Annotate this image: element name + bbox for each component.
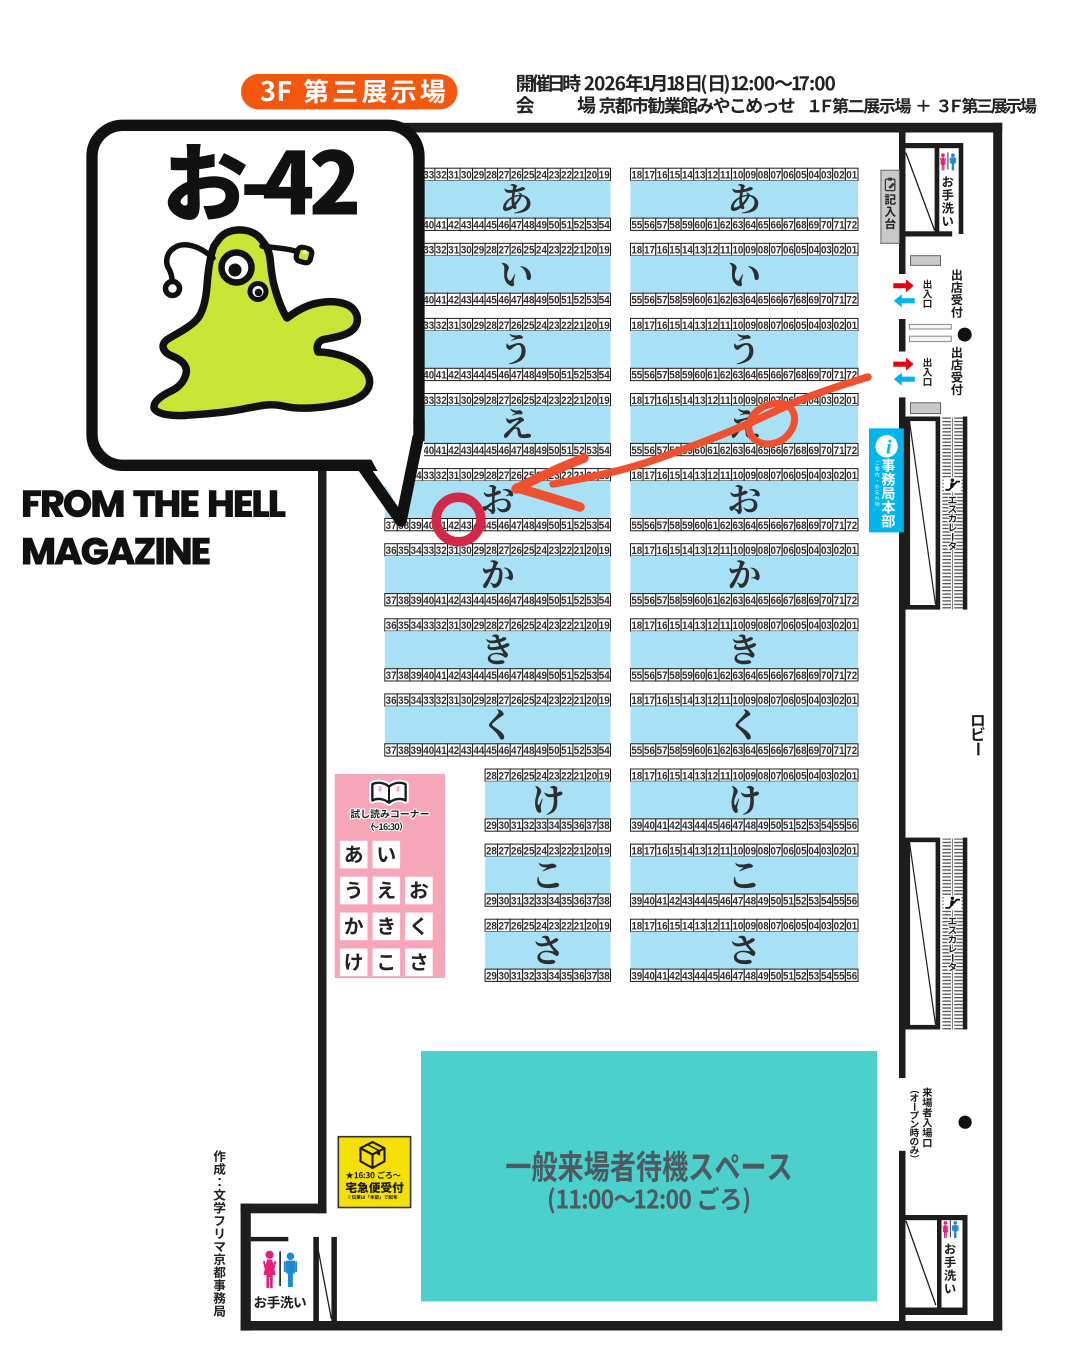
svg-text:04: 04	[808, 620, 820, 632]
svg-text:13: 13	[695, 545, 706, 557]
svg-text:58: 58	[669, 370, 680, 382]
svg-text:49: 49	[536, 370, 547, 382]
svg-text:27: 27	[498, 620, 509, 632]
svg-text:38: 38	[398, 670, 409, 682]
svg-text:08: 08	[758, 245, 769, 257]
svg-text:51: 51	[561, 745, 572, 757]
svg-text:26: 26	[511, 245, 522, 257]
svg-text:19: 19	[599, 170, 610, 182]
svg-text:08: 08	[758, 320, 769, 332]
svg-text:26: 26	[511, 921, 522, 933]
svg-text:66: 66	[770, 295, 781, 307]
svg-text:32: 32	[436, 620, 447, 632]
svg-text:04: 04	[808, 320, 820, 332]
svg-text:26: 26	[511, 545, 522, 557]
svg-text:59: 59	[682, 219, 693, 231]
svg-text:45: 45	[486, 745, 497, 757]
svg-text:28: 28	[486, 470, 497, 482]
svg-text:50: 50	[549, 445, 560, 457]
svg-text:03: 03	[821, 545, 832, 557]
svg-text:13: 13	[695, 845, 706, 857]
svg-text:28: 28	[486, 395, 497, 407]
svg-text:35: 35	[398, 545, 409, 557]
svg-text:19: 19	[599, 620, 610, 632]
svg-text:02: 02	[834, 921, 845, 933]
svg-text:20: 20	[586, 620, 597, 632]
svg-text:22: 22	[561, 170, 572, 182]
svg-text:14: 14	[682, 620, 694, 632]
svg-text:02: 02	[834, 545, 845, 557]
svg-text:55: 55	[631, 595, 642, 607]
svg-text:48: 48	[524, 670, 535, 682]
svg-text:48: 48	[745, 820, 756, 832]
svg-text:07: 07	[770, 845, 781, 857]
svg-text:70: 70	[821, 595, 832, 607]
svg-text:58: 58	[669, 295, 680, 307]
svg-text:52: 52	[574, 295, 585, 307]
svg-text:47: 47	[511, 745, 522, 757]
svg-text:06: 06	[783, 695, 794, 707]
svg-text:15: 15	[669, 245, 680, 257]
svg-text:50: 50	[549, 745, 560, 757]
svg-text:24: 24	[536, 770, 548, 782]
svg-text:61: 61	[707, 219, 718, 231]
svg-text:50: 50	[770, 895, 781, 907]
svg-text:45: 45	[707, 895, 718, 907]
svg-text:36: 36	[386, 695, 397, 707]
svg-text:49: 49	[536, 745, 547, 757]
svg-text:24: 24	[536, 921, 548, 933]
svg-text:52: 52	[796, 895, 807, 907]
svg-text:51: 51	[783, 820, 794, 832]
svg-text:26: 26	[511, 320, 522, 332]
svg-text:32: 32	[436, 395, 447, 407]
svg-text:05: 05	[796, 695, 807, 707]
svg-text:49: 49	[536, 295, 547, 307]
svg-text:25: 25	[524, 170, 535, 182]
svg-text:56: 56	[644, 370, 655, 382]
svg-text:68: 68	[796, 745, 807, 757]
svg-text:49: 49	[758, 820, 769, 832]
svg-text:22: 22	[561, 921, 572, 933]
svg-text:50: 50	[549, 595, 560, 607]
svg-text:64: 64	[745, 670, 757, 682]
svg-text:35: 35	[561, 820, 572, 832]
svg-text:40: 40	[423, 219, 434, 231]
svg-text:18: 18	[631, 170, 642, 182]
svg-text:27: 27	[498, 770, 509, 782]
svg-text:32: 32	[436, 170, 447, 182]
svg-text:02: 02	[834, 320, 845, 332]
svg-text:15: 15	[669, 695, 680, 707]
svg-text:53: 53	[808, 820, 819, 832]
svg-text:45: 45	[707, 820, 718, 832]
svg-text:47: 47	[511, 670, 522, 682]
svg-text:31: 31	[511, 820, 522, 832]
svg-text:56: 56	[644, 445, 655, 457]
svg-text:27: 27	[498, 695, 509, 707]
svg-text:70: 70	[821, 445, 832, 457]
svg-text:03: 03	[821, 921, 832, 933]
svg-text:54: 54	[599, 445, 611, 457]
svg-text:43: 43	[461, 219, 472, 231]
svg-text:55: 55	[834, 971, 845, 983]
svg-text:54: 54	[599, 219, 611, 231]
svg-text:67: 67	[783, 295, 794, 307]
svg-text:03: 03	[821, 620, 832, 632]
svg-text:12: 12	[707, 770, 718, 782]
svg-text:58: 58	[669, 520, 680, 532]
svg-text:67: 67	[783, 670, 794, 682]
svg-text:26: 26	[511, 770, 522, 782]
svg-text:41: 41	[436, 370, 447, 382]
svg-text:57: 57	[657, 670, 668, 682]
svg-text:22: 22	[561, 395, 572, 407]
svg-text:51: 51	[561, 370, 572, 382]
svg-text:50: 50	[770, 820, 781, 832]
svg-text:14: 14	[682, 395, 694, 407]
svg-text:31: 31	[448, 320, 459, 332]
svg-text:34: 34	[411, 545, 423, 557]
svg-text:10: 10	[732, 695, 743, 707]
svg-text:59: 59	[682, 595, 693, 607]
svg-text:09: 09	[745, 921, 756, 933]
svg-text:29: 29	[473, 470, 484, 482]
svg-text:42: 42	[448, 445, 459, 457]
svg-text:04: 04	[808, 770, 820, 782]
svg-text:72: 72	[846, 670, 857, 682]
svg-text:33: 33	[423, 545, 434, 557]
svg-text:43: 43	[461, 520, 472, 532]
svg-text:22: 22	[561, 320, 572, 332]
svg-text:27: 27	[498, 245, 509, 257]
svg-text:68: 68	[796, 595, 807, 607]
svg-text:52: 52	[574, 670, 585, 682]
svg-text:49: 49	[536, 670, 547, 682]
svg-text:53: 53	[808, 971, 819, 983]
svg-text:48: 48	[745, 895, 756, 907]
svg-text:11: 11	[720, 545, 731, 557]
svg-text:31: 31	[511, 971, 522, 983]
svg-text:16: 16	[657, 921, 668, 933]
svg-text:58: 58	[669, 595, 680, 607]
svg-text:06: 06	[783, 620, 794, 632]
svg-text:25: 25	[524, 245, 535, 257]
svg-text:06: 06	[783, 170, 794, 182]
svg-text:23: 23	[549, 921, 560, 933]
svg-text:37: 37	[586, 971, 597, 983]
svg-text:57: 57	[657, 520, 668, 532]
svg-text:57: 57	[657, 595, 668, 607]
svg-text:56: 56	[644, 745, 655, 757]
svg-text:33: 33	[423, 620, 434, 632]
svg-text:22: 22	[561, 620, 572, 632]
svg-text:69: 69	[808, 295, 819, 307]
svg-text:61: 61	[707, 745, 718, 757]
svg-text:49: 49	[536, 219, 547, 231]
svg-text:72: 72	[846, 595, 857, 607]
svg-text:47: 47	[511, 445, 522, 457]
svg-text:51: 51	[561, 445, 572, 457]
svg-text:62: 62	[720, 445, 731, 457]
svg-text:37: 37	[386, 595, 397, 607]
svg-text:04: 04	[808, 845, 820, 857]
svg-text:55: 55	[631, 670, 642, 682]
svg-text:30: 30	[461, 395, 472, 407]
svg-text:15: 15	[669, 770, 680, 782]
svg-text:13: 13	[695, 921, 706, 933]
svg-text:65: 65	[758, 295, 769, 307]
svg-text:57: 57	[657, 295, 668, 307]
svg-text:50: 50	[549, 295, 560, 307]
svg-text:63: 63	[732, 219, 743, 231]
svg-text:46: 46	[498, 295, 509, 307]
svg-text:10: 10	[732, 320, 743, 332]
svg-text:65: 65	[758, 670, 769, 682]
svg-text:22: 22	[561, 695, 572, 707]
svg-text:47: 47	[511, 295, 522, 307]
svg-text:54: 54	[599, 370, 611, 382]
svg-text:68: 68	[796, 370, 807, 382]
svg-text:21: 21	[574, 320, 585, 332]
svg-text:60: 60	[695, 370, 706, 382]
svg-text:28: 28	[486, 921, 497, 933]
svg-text:05: 05	[796, 845, 807, 857]
svg-text:09: 09	[745, 695, 756, 707]
svg-text:04: 04	[808, 245, 820, 257]
svg-text:69: 69	[808, 370, 819, 382]
svg-text:52: 52	[574, 370, 585, 382]
svg-text:30: 30	[461, 695, 472, 707]
svg-text:23: 23	[549, 320, 560, 332]
svg-text:25: 25	[524, 695, 535, 707]
svg-text:16: 16	[657, 695, 668, 707]
svg-text:56: 56	[644, 670, 655, 682]
svg-text:04: 04	[808, 170, 820, 182]
svg-text:09: 09	[745, 320, 756, 332]
svg-text:30: 30	[461, 620, 472, 632]
svg-text:71: 71	[834, 595, 845, 607]
svg-text:48: 48	[524, 445, 535, 457]
svg-text:18: 18	[631, 620, 642, 632]
svg-text:63: 63	[732, 745, 743, 757]
svg-text:59: 59	[682, 370, 693, 382]
svg-text:16: 16	[657, 620, 668, 632]
svg-text:54: 54	[821, 820, 833, 832]
svg-text:18: 18	[631, 921, 642, 933]
svg-text:34: 34	[549, 895, 561, 907]
svg-text:58: 58	[669, 219, 680, 231]
svg-text:13: 13	[695, 170, 706, 182]
svg-text:63: 63	[732, 295, 743, 307]
svg-text:42: 42	[448, 745, 459, 757]
svg-text:50: 50	[549, 370, 560, 382]
svg-text:26: 26	[511, 845, 522, 857]
svg-text:19: 19	[599, 545, 610, 557]
svg-text:54: 54	[599, 520, 611, 532]
svg-text:29: 29	[473, 545, 484, 557]
svg-text:57: 57	[657, 219, 668, 231]
svg-text:21: 21	[574, 245, 585, 257]
svg-text:51: 51	[783, 971, 794, 983]
svg-text:51: 51	[561, 295, 572, 307]
svg-text:62: 62	[720, 670, 731, 682]
svg-text:16: 16	[657, 395, 668, 407]
svg-text:62: 62	[720, 520, 731, 532]
svg-text:01: 01	[846, 470, 857, 482]
svg-text:33: 33	[536, 971, 547, 983]
svg-text:17: 17	[644, 245, 655, 257]
svg-text:43: 43	[682, 820, 693, 832]
svg-text:08: 08	[758, 170, 769, 182]
svg-text:53: 53	[586, 745, 597, 757]
svg-text:50: 50	[549, 520, 560, 532]
svg-text:12: 12	[707, 695, 718, 707]
svg-text:01: 01	[846, 770, 857, 782]
svg-text:70: 70	[821, 670, 832, 682]
svg-text:47: 47	[732, 895, 743, 907]
svg-text:36: 36	[574, 971, 585, 983]
svg-text:55: 55	[834, 820, 845, 832]
svg-text:57: 57	[657, 745, 668, 757]
svg-text:46: 46	[498, 670, 509, 682]
svg-text:40: 40	[423, 745, 434, 757]
svg-text:05: 05	[796, 620, 807, 632]
svg-text:06: 06	[783, 320, 794, 332]
svg-text:06: 06	[783, 770, 794, 782]
svg-text:24: 24	[536, 245, 548, 257]
svg-text:17: 17	[644, 695, 655, 707]
svg-text:35: 35	[398, 620, 409, 632]
svg-text:44: 44	[695, 895, 707, 907]
svg-text:08: 08	[758, 470, 769, 482]
svg-text:41: 41	[657, 820, 668, 832]
svg-text:69: 69	[808, 445, 819, 457]
svg-text:32: 32	[524, 820, 535, 832]
svg-text:47: 47	[732, 820, 743, 832]
svg-text:29: 29	[486, 895, 497, 907]
svg-text:10: 10	[732, 770, 743, 782]
svg-text:11: 11	[720, 170, 731, 182]
svg-text:64: 64	[745, 370, 757, 382]
svg-text:29: 29	[473, 320, 484, 332]
svg-text:55: 55	[631, 370, 642, 382]
svg-text:12: 12	[707, 245, 718, 257]
svg-text:40: 40	[423, 370, 434, 382]
svg-text:67: 67	[783, 520, 794, 532]
svg-text:18: 18	[631, 395, 642, 407]
svg-text:13: 13	[695, 770, 706, 782]
svg-text:66: 66	[770, 370, 781, 382]
svg-text:33: 33	[423, 320, 434, 332]
svg-text:17: 17	[644, 620, 655, 632]
svg-text:67: 67	[783, 595, 794, 607]
svg-text:66: 66	[770, 219, 781, 231]
svg-text:11: 11	[720, 395, 731, 407]
svg-text:60: 60	[695, 670, 706, 682]
svg-text:26: 26	[511, 395, 522, 407]
svg-text:08: 08	[758, 620, 769, 632]
svg-text:06: 06	[783, 245, 794, 257]
svg-text:22: 22	[561, 245, 572, 257]
svg-text:09: 09	[745, 170, 756, 182]
svg-text:38: 38	[398, 745, 409, 757]
svg-text:03: 03	[821, 695, 832, 707]
svg-text:24: 24	[536, 695, 548, 707]
svg-text:19: 19	[599, 845, 610, 857]
svg-text:20: 20	[586, 395, 597, 407]
svg-text:71: 71	[834, 520, 845, 532]
svg-text:44: 44	[473, 595, 485, 607]
svg-text:46: 46	[498, 595, 509, 607]
svg-text:25: 25	[524, 320, 535, 332]
svg-text:26: 26	[511, 620, 522, 632]
svg-text:63: 63	[732, 370, 743, 382]
svg-text:27: 27	[498, 320, 509, 332]
svg-text:35: 35	[561, 971, 572, 983]
svg-text:64: 64	[745, 595, 757, 607]
svg-text:40: 40	[423, 295, 434, 307]
svg-text:44: 44	[695, 971, 707, 983]
svg-text:12: 12	[707, 320, 718, 332]
svg-text:11: 11	[720, 921, 731, 933]
svg-text:17: 17	[644, 320, 655, 332]
svg-text:21: 21	[574, 845, 585, 857]
svg-text:16: 16	[657, 320, 668, 332]
svg-text:39: 39	[411, 520, 422, 532]
svg-text:13: 13	[695, 695, 706, 707]
svg-text:23: 23	[549, 245, 560, 257]
svg-text:09: 09	[745, 245, 756, 257]
svg-text:39: 39	[411, 670, 422, 682]
svg-text:41: 41	[436, 219, 447, 231]
svg-text:51: 51	[561, 670, 572, 682]
svg-text:65: 65	[758, 370, 769, 382]
svg-text:31: 31	[448, 620, 459, 632]
svg-text:16: 16	[657, 770, 668, 782]
svg-text:66: 66	[770, 670, 781, 682]
svg-text:72: 72	[846, 219, 857, 231]
svg-text:48: 48	[524, 520, 535, 532]
svg-text:38: 38	[599, 971, 610, 983]
svg-text:10: 10	[732, 620, 743, 632]
svg-text:12: 12	[707, 845, 718, 857]
svg-text:29: 29	[473, 395, 484, 407]
svg-text:05: 05	[796, 470, 807, 482]
svg-text:52: 52	[796, 820, 807, 832]
svg-text:33: 33	[423, 395, 434, 407]
svg-text:46: 46	[498, 445, 509, 457]
svg-text:20: 20	[586, 845, 597, 857]
svg-text:47: 47	[511, 595, 522, 607]
svg-text:21: 21	[574, 170, 585, 182]
svg-text:48: 48	[524, 595, 535, 607]
svg-text:23: 23	[549, 620, 560, 632]
svg-text:25: 25	[524, 620, 535, 632]
svg-text:10: 10	[732, 245, 743, 257]
svg-text:14: 14	[682, 770, 694, 782]
svg-text:18: 18	[631, 695, 642, 707]
svg-text:07: 07	[770, 620, 781, 632]
svg-text:61: 61	[707, 295, 718, 307]
svg-text:43: 43	[461, 445, 472, 457]
svg-text:30: 30	[461, 245, 472, 257]
svg-text:39: 39	[631, 971, 642, 983]
svg-text:18: 18	[631, 770, 642, 782]
svg-text:69: 69	[808, 670, 819, 682]
svg-text:15: 15	[669, 845, 680, 857]
svg-text:56: 56	[846, 895, 857, 907]
